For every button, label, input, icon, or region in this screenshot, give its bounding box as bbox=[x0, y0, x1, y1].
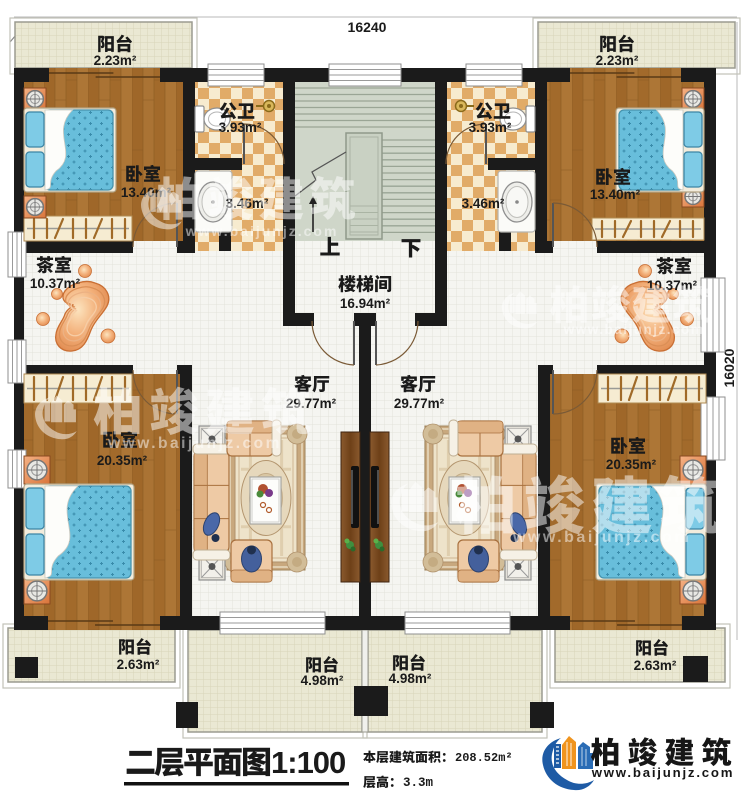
svg-text:3.93m²: 3.93m² bbox=[219, 120, 262, 135]
svg-text:3.3m: 3.3m bbox=[403, 776, 434, 790]
svg-text:16240: 16240 bbox=[348, 19, 387, 35]
svg-text:3.93m²: 3.93m² bbox=[469, 120, 512, 135]
svg-text:3.46m²: 3.46m² bbox=[462, 196, 505, 211]
svg-text:208.52m²: 208.52m² bbox=[455, 751, 513, 765]
svg-text:www.baijunjz.com: www.baijunjz.com bbox=[512, 529, 691, 546]
svg-text:www.baijunjz.com: www.baijunjz.com bbox=[107, 435, 282, 452]
svg-text:4.98m²: 4.98m² bbox=[389, 671, 432, 686]
svg-text:1:100: 1:100 bbox=[271, 745, 345, 780]
svg-text:www.baijunjz.com: www.baijunjz.com bbox=[185, 223, 339, 239]
svg-text:29.77m²: 29.77m² bbox=[394, 396, 445, 411]
svg-text:www.baijunjz.com: www.baijunjz.com bbox=[591, 765, 735, 780]
svg-text:16020: 16020 bbox=[721, 348, 737, 387]
svg-text:10.37m²: 10.37m² bbox=[30, 276, 81, 291]
svg-text:2.23m²: 2.23m² bbox=[596, 53, 639, 68]
svg-text:20.35m²: 20.35m² bbox=[606, 457, 657, 472]
svg-text:13.40m²: 13.40m² bbox=[590, 187, 641, 202]
svg-text:2.23m²: 2.23m² bbox=[94, 53, 137, 68]
svg-text:2.63m²: 2.63m² bbox=[634, 658, 677, 673]
svg-text:20.35m²: 20.35m² bbox=[97, 453, 148, 468]
svg-text:www.baijunjz.com: www.baijunjz.com bbox=[563, 322, 705, 337]
svg-text:16.94m²: 16.94m² bbox=[340, 296, 391, 311]
svg-text:2.63m²: 2.63m² bbox=[117, 657, 160, 672]
svg-text:4.98m²: 4.98m² bbox=[301, 673, 344, 688]
